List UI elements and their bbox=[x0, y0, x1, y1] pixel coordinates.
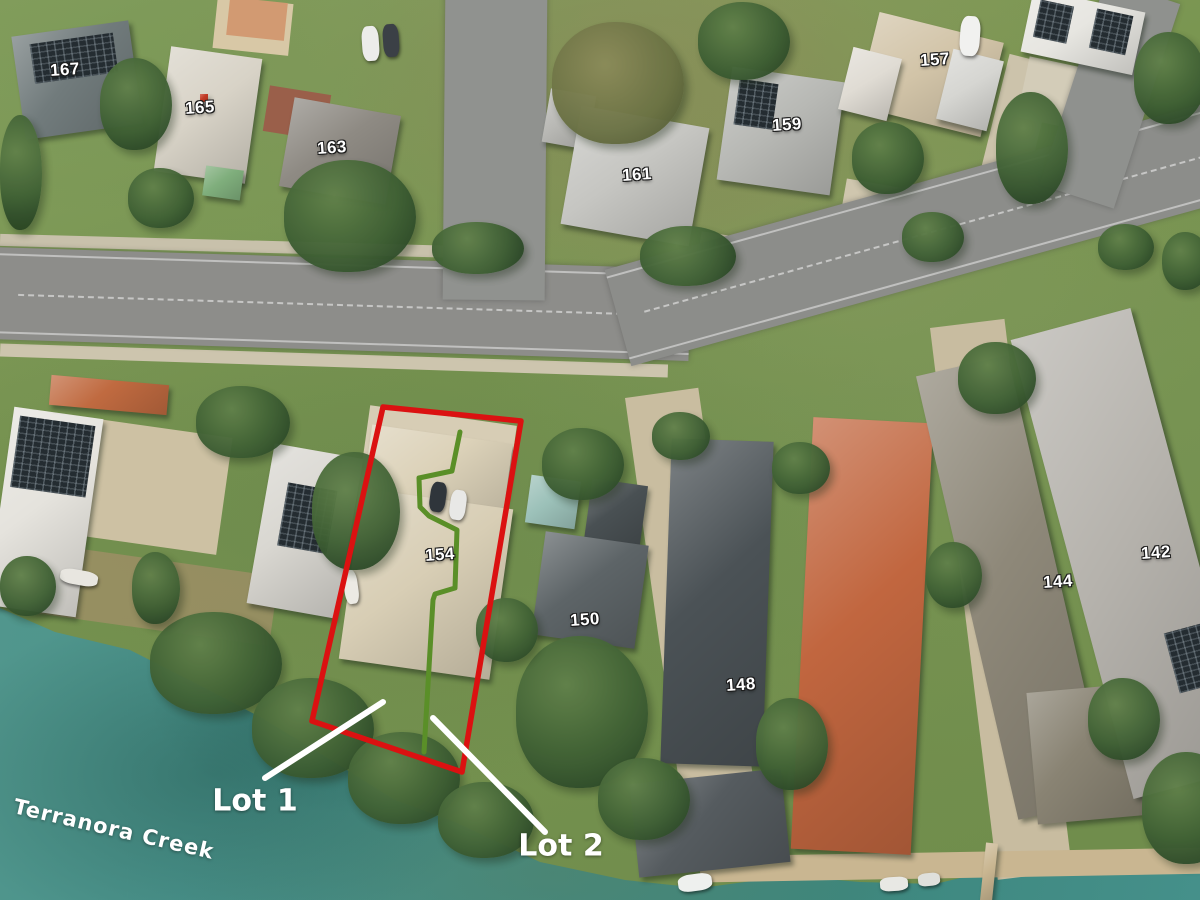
solar-panels bbox=[734, 79, 779, 130]
tree-canopy bbox=[312, 452, 400, 570]
vehicle bbox=[382, 23, 400, 57]
tree-canopy bbox=[1134, 32, 1200, 124]
tree-canopy bbox=[432, 222, 524, 274]
garden-shed bbox=[202, 166, 244, 201]
tree-canopy bbox=[0, 556, 56, 616]
tree-canopy bbox=[128, 168, 194, 228]
tree-canopy bbox=[100, 58, 172, 150]
solar-panels bbox=[1089, 9, 1133, 55]
paved-area bbox=[226, 0, 288, 41]
tree-canopy bbox=[476, 598, 538, 662]
solar-panels bbox=[10, 416, 95, 498]
tree-canopy bbox=[926, 542, 982, 608]
tree-canopy bbox=[1098, 224, 1154, 270]
tree-canopy bbox=[1162, 232, 1200, 290]
tree-canopy bbox=[132, 552, 180, 624]
tree-canopy bbox=[652, 412, 710, 460]
building-150 bbox=[531, 531, 648, 648]
tree-canopy bbox=[542, 428, 624, 500]
tree-canopy bbox=[438, 782, 534, 858]
solar-panels bbox=[1033, 0, 1074, 44]
tree-canopy bbox=[598, 758, 690, 840]
tree-canopy bbox=[196, 386, 290, 458]
tree-canopy bbox=[996, 92, 1068, 204]
tree-canopy bbox=[1088, 678, 1160, 760]
building-159 bbox=[717, 67, 846, 196]
tree-canopy bbox=[958, 342, 1036, 414]
vehicle bbox=[361, 25, 380, 61]
tree-canopy bbox=[902, 212, 964, 262]
road-marking bbox=[18, 294, 662, 316]
roof-vent bbox=[200, 94, 208, 102]
tree-canopy bbox=[772, 442, 830, 494]
tree-canopy bbox=[552, 22, 684, 144]
tree-canopy bbox=[698, 2, 790, 80]
tree-canopy bbox=[756, 698, 828, 790]
aerial-map: 167165163161159157154150148144142Lot 1Lo… bbox=[0, 0, 1200, 900]
building-148 bbox=[660, 438, 773, 766]
tree-canopy bbox=[284, 160, 416, 272]
tree-canopy bbox=[640, 226, 736, 286]
tree-canopy bbox=[0, 115, 42, 230]
tree-canopy bbox=[852, 122, 924, 194]
solar-panels bbox=[1164, 623, 1200, 694]
